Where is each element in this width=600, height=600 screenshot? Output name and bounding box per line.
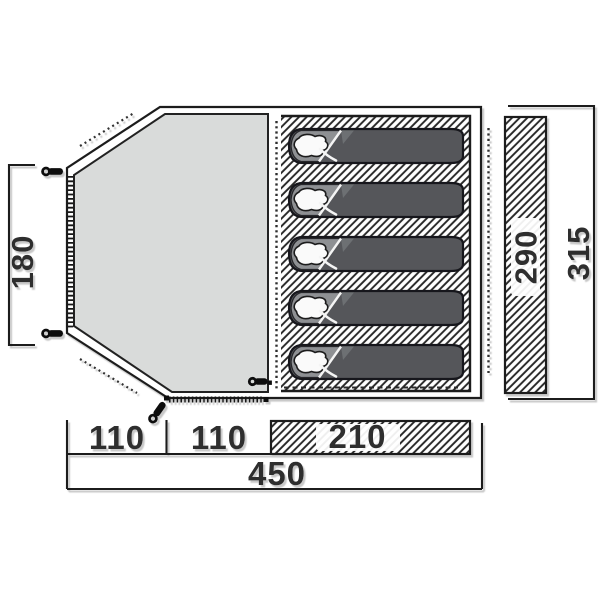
zipper-stop bbox=[164, 396, 169, 401]
sleeping-bag bbox=[289, 345, 463, 379]
dimension-label-left-height: 180 bbox=[5, 235, 40, 290]
dimension-label-bottom-total: 450 bbox=[248, 455, 306, 492]
sleeping-bag bbox=[289, 237, 463, 271]
tent-peg-icon bbox=[43, 330, 63, 337]
sleeping-bag bbox=[289, 183, 463, 217]
sleeping-bag bbox=[289, 291, 463, 325]
dimension-label-bottom-2: 110 bbox=[191, 419, 247, 456]
dimension-label-sleeping-width: 290 bbox=[509, 230, 544, 285]
tent-peg-icon bbox=[148, 401, 167, 424]
dimension-label-total-width: 315 bbox=[561, 226, 596, 281]
zipper-stop bbox=[264, 397, 269, 402]
tent-floorplan-diagram: 290 315 180 110 110 210 450 bbox=[0, 0, 600, 600]
dimension-label-bottom-3: 210 bbox=[328, 418, 386, 455]
sleeping-bag bbox=[289, 129, 463, 163]
tent-peg-icon bbox=[43, 168, 63, 175]
dimension-label-bottom-1: 110 bbox=[89, 419, 145, 456]
floorplan-svg: 290 315 180 110 110 210 450 bbox=[0, 0, 600, 600]
